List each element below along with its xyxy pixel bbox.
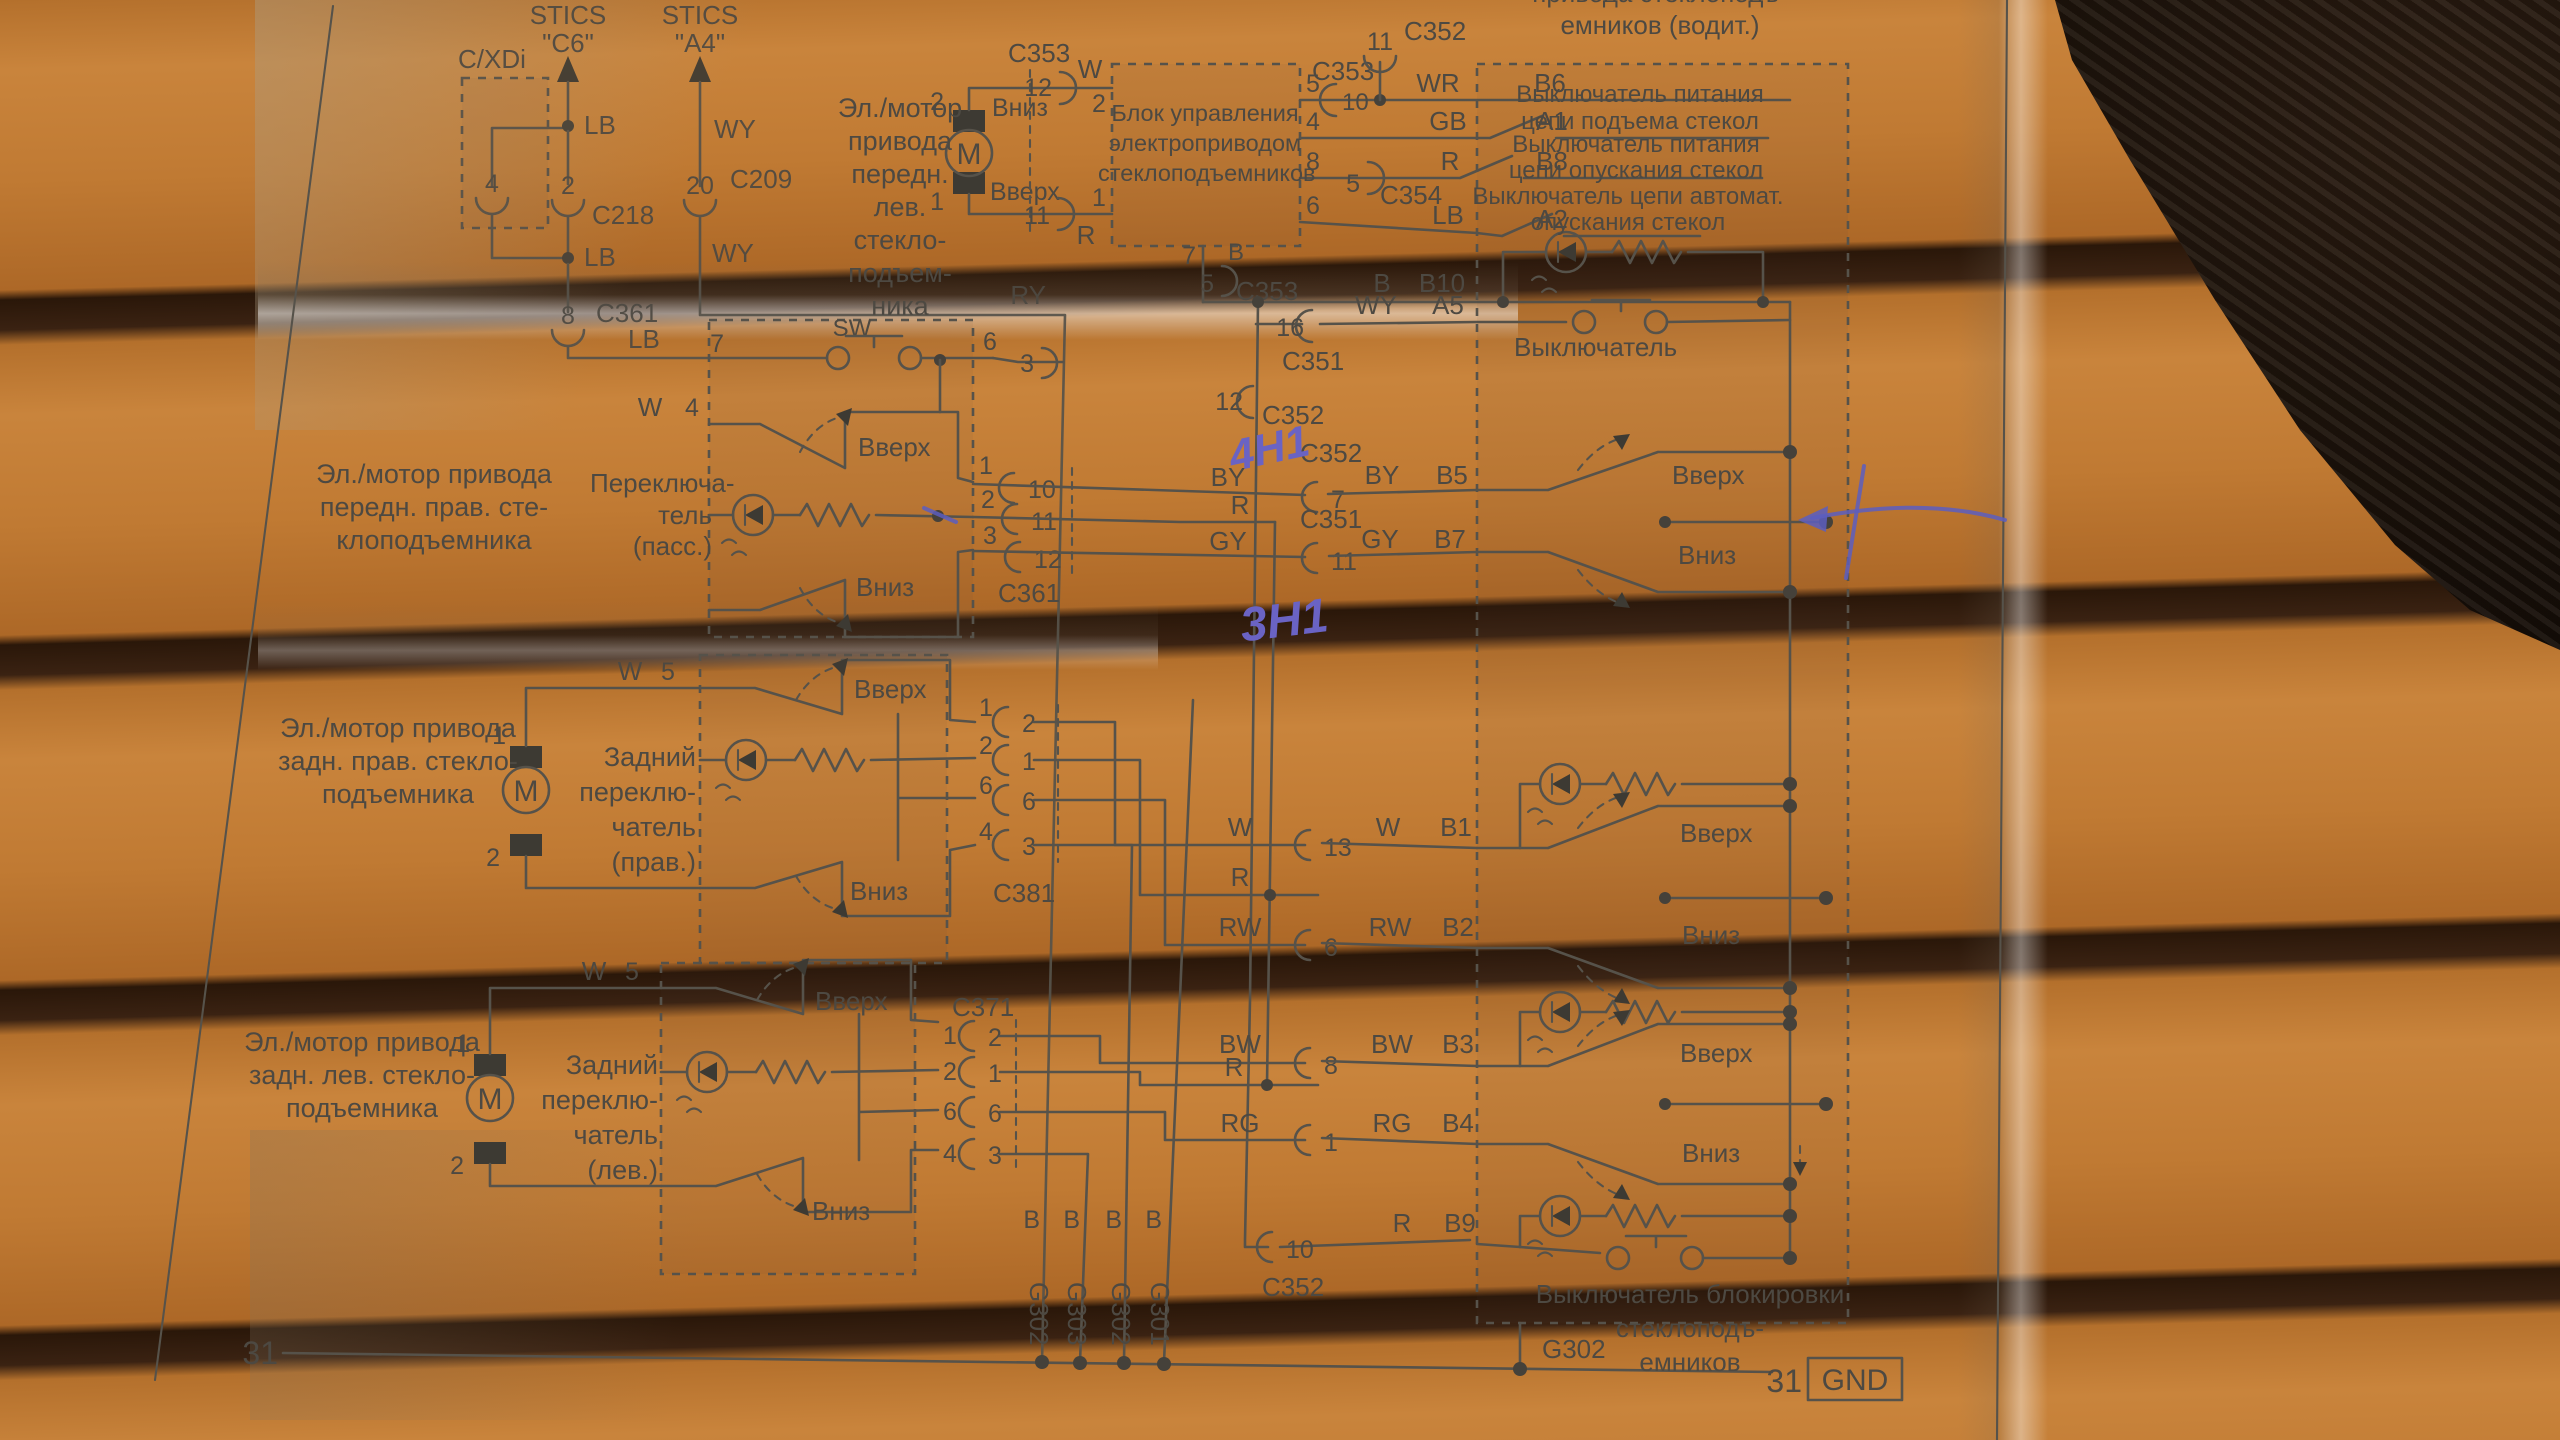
motor-icon: M <box>514 775 539 808</box>
ctrl-pin-6: 6 <box>1306 192 1320 220</box>
pin-11: 11 <box>1367 28 1393 56</box>
wire-b: B <box>1063 1206 1080 1234</box>
pin-2: 2 <box>979 732 993 760</box>
ctrl-pin-7: 7 <box>1182 242 1196 270</box>
wire-by: BY <box>1211 462 1246 492</box>
pin-16: 16 <box>1276 314 1304 342</box>
motor-pin-2: 2 <box>930 88 944 116</box>
pin-1: 1 <box>943 1022 957 1050</box>
connector-c371: C371 <box>952 992 1014 1022</box>
wire-r: R <box>1441 146 1460 176</box>
connector-c381: C381 <box>993 878 1055 908</box>
arrow-up-icon <box>689 56 711 82</box>
wire-b: B <box>1105 1206 1122 1234</box>
wire-rg: RG <box>1221 1108 1260 1138</box>
pin-10: 10 <box>1286 1236 1314 1264</box>
ctrl-pin-4: 4 <box>1306 108 1320 136</box>
control-unit-box <box>1112 64 1300 246</box>
switch-label: Выключатель <box>1514 332 1677 362</box>
pin-3: 3 <box>1020 350 1034 378</box>
pin-4: 4 <box>943 1140 957 1168</box>
pin-11: 11 <box>1331 548 1357 576</box>
wire-w: W <box>1376 812 1401 842</box>
stics-c6: STICS <box>530 0 607 30</box>
terminal-b2: B2 <box>1442 912 1474 942</box>
motor-pin-2: 2 <box>450 1152 464 1180</box>
down-label: Вниз <box>1682 920 1740 950</box>
motor-icon: M <box>957 138 982 171</box>
pin-2: 2 <box>561 172 575 200</box>
connector-c218: C218 <box>592 200 654 230</box>
photo-of-wiring-diagram: Эл./мотор привода передн. лев. стекло- п… <box>0 0 2560 1440</box>
wire-gy: GY <box>1209 526 1247 556</box>
terminal-b5: B5 <box>1436 460 1468 490</box>
up-label: Вверх <box>854 674 927 704</box>
wire-r: R <box>1231 862 1250 892</box>
terminal-b4: B4 <box>1442 1108 1474 1138</box>
up-label: Вверх <box>1680 818 1753 848</box>
wire-w: W <box>1078 54 1103 84</box>
wire-bw: BW <box>1371 1029 1413 1059</box>
wire-by: BY <box>1365 460 1400 490</box>
pin-11: 11 <box>1031 508 1057 536</box>
wire-wr: WR <box>1416 68 1459 98</box>
pin-3: 3 <box>983 522 997 550</box>
wire-wy: WY <box>1355 290 1397 320</box>
pin-1: 1 <box>979 694 993 722</box>
pin-3: 3 <box>988 1142 1002 1170</box>
down-label: Вниз <box>1678 540 1736 570</box>
ctrl-in-2: 2 <box>1092 90 1106 118</box>
up-label: Вверх <box>1680 1038 1753 1068</box>
pin-8: 8 <box>561 302 575 330</box>
pin-2: 2 <box>988 1024 1002 1052</box>
connector-c352: C352 <box>1262 1272 1324 1302</box>
ctrl-pin-8: 8 <box>1306 148 1320 176</box>
label-gnd: GND <box>1822 1364 1889 1397</box>
wire-wy: WY <box>712 238 754 268</box>
pin-1: 1 <box>979 452 993 480</box>
pin-4: 4 <box>485 170 499 198</box>
wire-gb: GB <box>1429 106 1467 136</box>
ctrl-in-1: 1 <box>1092 184 1106 212</box>
down-label: Вниз <box>850 876 908 906</box>
connector-c352: C352 <box>1262 400 1324 430</box>
ctrl-pin-5: 5 <box>1306 70 1320 98</box>
wire-rw: RW <box>1369 912 1412 942</box>
terminal-b1: B1 <box>1440 812 1472 842</box>
terminal-a5: A5 <box>1432 290 1464 320</box>
pin-6: 6 <box>1324 934 1338 962</box>
ground-g302: G302 <box>1106 1282 1136 1346</box>
down-label: Вниз <box>812 1196 870 1226</box>
pin-12: 12 <box>1215 388 1243 416</box>
stics-c6-code: "C6" <box>542 28 594 58</box>
pin-7: 7 <box>710 330 724 358</box>
connector-c361: C361 <box>998 578 1060 608</box>
wire-r: R <box>1077 220 1096 250</box>
down-label: Вниз <box>856 572 914 602</box>
wire-lb: LB <box>628 324 660 354</box>
terminal-b3: B3 <box>1442 1029 1474 1059</box>
pin-2: 2 <box>943 1058 957 1086</box>
label-31: 31 <box>242 1335 278 1371</box>
pin-6: 6 <box>943 1098 957 1126</box>
wire-wy: WY <box>714 114 756 144</box>
pin-6: 6 <box>979 772 993 800</box>
wire-b: B <box>1145 1206 1162 1234</box>
wire-ry: RY <box>1010 280 1046 310</box>
arrow-up-icon <box>557 56 579 82</box>
cxdi-label: C/XDi <box>458 44 526 74</box>
front-left-motor-circuit: M 2 Вниз 1 Вверх C353 12 W 2 11 1 R <box>930 38 1300 250</box>
pin-5: 5 <box>1346 170 1360 198</box>
wire-w: W <box>618 656 643 686</box>
pin-13: 13 <box>1324 834 1352 862</box>
sw-label: SW <box>833 315 872 342</box>
mid-connectors: 12 C352 BY C352 7 BY B5 R C351 11 GY B7 … <box>1209 296 1477 1247</box>
ground-g303: G303 <box>1062 1282 1092 1346</box>
motor-pin-1: 1 <box>492 722 506 750</box>
wire-lb: LB <box>1432 200 1464 230</box>
passenger-switch: SW 7 6 3 Вверх W 4 <box>638 315 1305 637</box>
pin-10: 10 <box>1342 89 1369 116</box>
pin-5: 5 <box>661 658 675 686</box>
stics-a4: STICS <box>662 0 739 30</box>
wire-gy: GY <box>1361 524 1399 554</box>
wire-b: B <box>1228 239 1244 266</box>
up-label: Вверх <box>815 986 888 1016</box>
pin-2: 2 <box>1022 710 1036 738</box>
up-label: Вверх <box>1672 460 1745 490</box>
ground-g302: G302 <box>1542 1334 1606 1364</box>
motor-pin-2: 2 <box>486 844 500 872</box>
pin-5: 5 <box>1200 270 1214 298</box>
connector-c352: C352 <box>1300 438 1362 468</box>
wire-b: B <box>1023 1206 1040 1234</box>
motor-pin-1: 1 <box>456 1030 470 1058</box>
wire-w: W <box>1228 812 1253 842</box>
connector-c353: C353 <box>1008 38 1070 68</box>
connector-c351: C351 <box>1282 346 1344 376</box>
wire-lb: LB <box>584 110 616 140</box>
up-label: Вверх <box>858 432 931 462</box>
stics-a4-code: "A4" <box>675 28 725 58</box>
pin-20: 20 <box>686 172 714 200</box>
connector-c351: C351 <box>1300 504 1362 534</box>
pin-12: 12 <box>1034 546 1062 574</box>
pin-6: 6 <box>1022 788 1036 816</box>
pin-5: 5 <box>625 958 639 986</box>
pin-1: 1 <box>1324 1129 1338 1157</box>
wire-w: W <box>638 392 663 422</box>
wire-w: W <box>582 956 607 986</box>
terminal-b9: B9 <box>1444 1208 1476 1238</box>
wire-rg: RG <box>1373 1108 1412 1138</box>
pin-4: 4 <box>979 818 993 846</box>
pin-4: 4 <box>685 394 699 422</box>
pin-6: 6 <box>988 1100 1002 1128</box>
label-31: 31 <box>1766 1363 1802 1399</box>
pin-1: 1 <box>988 1060 1002 1088</box>
motor-icon: M <box>478 1083 503 1116</box>
pin-12: 12 <box>1024 74 1052 102</box>
pin-1: 1 <box>1022 748 1036 776</box>
motor-pin-1: 1 <box>930 188 944 216</box>
pin-11: 11 <box>1024 202 1050 230</box>
pin-3: 3 <box>1022 833 1036 861</box>
pin-6: 6 <box>983 328 997 356</box>
pin-8: 8 <box>1324 1052 1338 1080</box>
connector-c352: C352 <box>1404 16 1466 46</box>
ground-g301: G301 <box>1145 1282 1175 1346</box>
down-label: Вниз <box>1682 1138 1740 1168</box>
wire-r: R <box>1225 1052 1244 1082</box>
terminal-b7: B7 <box>1434 524 1466 554</box>
wire-lb: LB <box>584 242 616 272</box>
schematic: C/XDi 4 STICS "C6" LB 2 C218 LB 8 C361 L… <box>0 0 2560 1440</box>
wire-rw: RW <box>1219 912 1262 942</box>
connector-c209: C209 <box>730 164 792 194</box>
driver-panel: Выключатель <box>1477 64 1848 1323</box>
wire-r: R <box>1393 1208 1412 1238</box>
wire-r: R <box>1231 490 1250 520</box>
ground-g302: G302 <box>1024 1282 1054 1346</box>
pin-2: 2 <box>981 486 995 514</box>
pin-10: 10 <box>1028 476 1056 504</box>
